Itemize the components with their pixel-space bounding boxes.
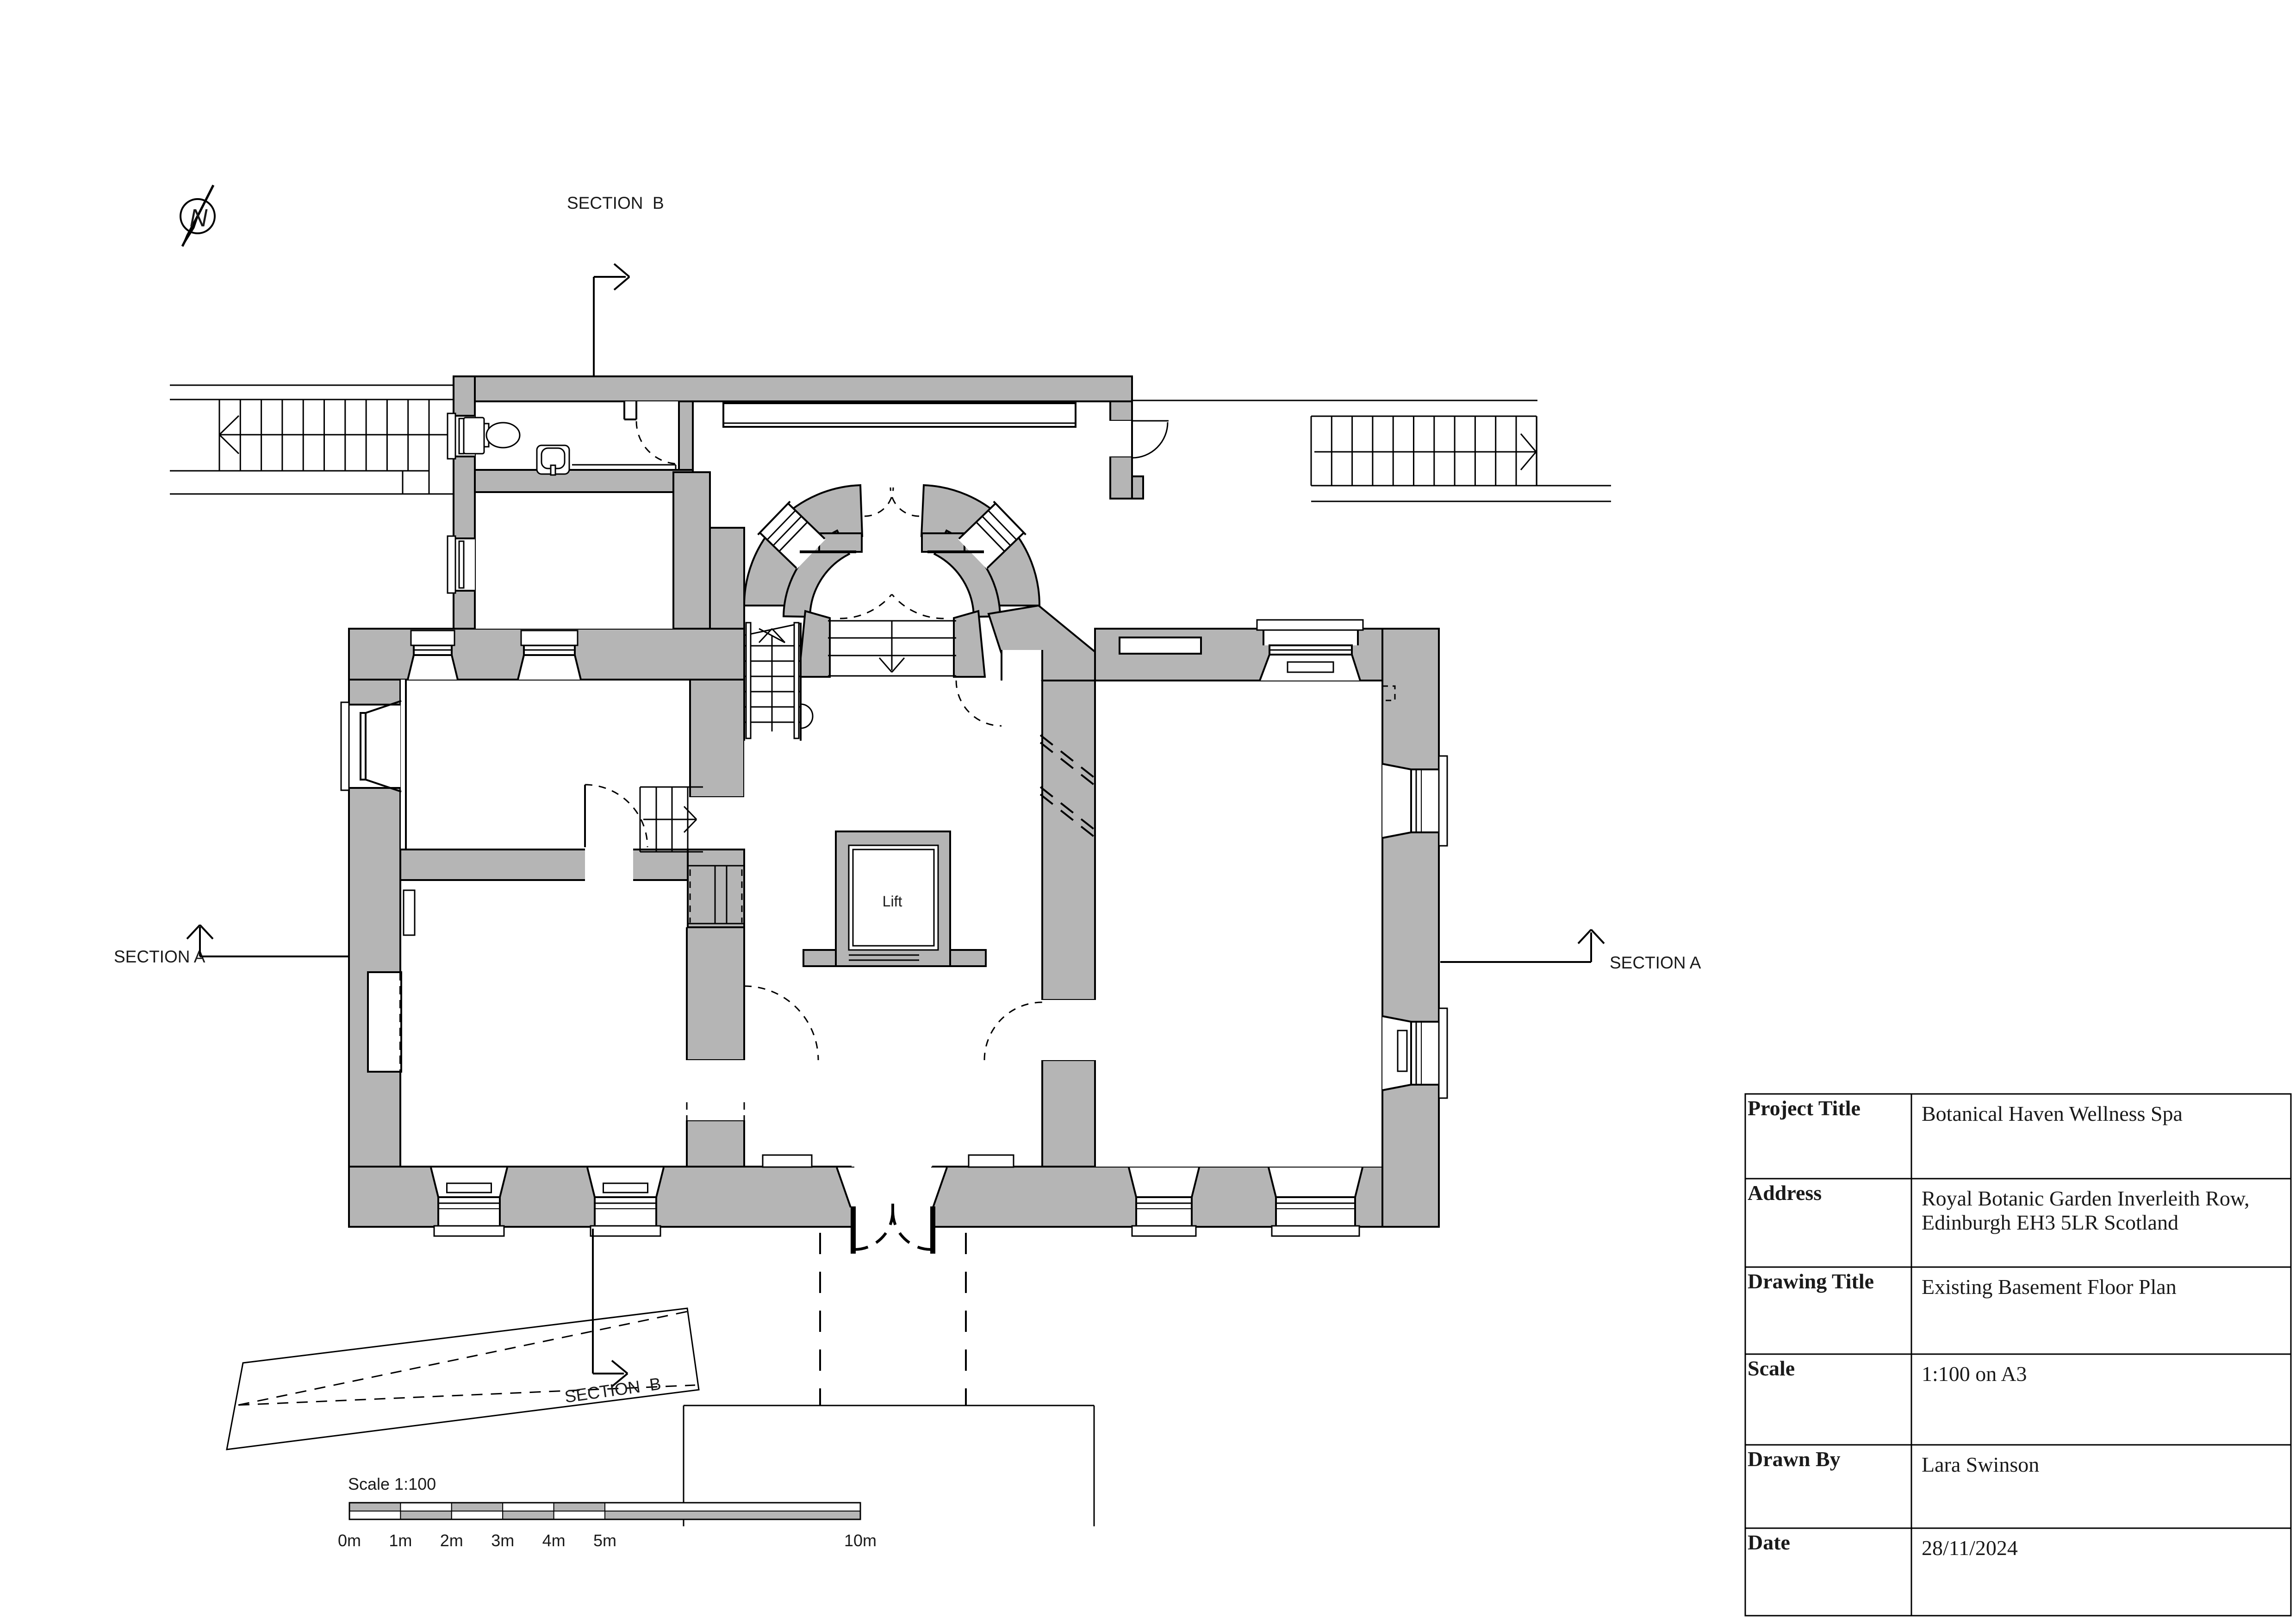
svg-text:0m: 0m: [338, 1531, 361, 1550]
svg-text:Edinburgh EH3 5LR Scotland: Edinburgh EH3 5LR Scotland: [1922, 1211, 2178, 1234]
svg-text:2m: 2m: [440, 1531, 463, 1550]
svg-text:Project Title: Project Title: [1748, 1096, 1860, 1120]
svg-text:3m: 3m: [491, 1531, 514, 1550]
svg-text:N: N: [190, 204, 208, 232]
svg-text:28/11/2024: 28/11/2024: [1922, 1536, 2018, 1560]
svg-text:Scale 1:100: Scale 1:100: [348, 1474, 436, 1493]
svg-text:Drawn By: Drawn By: [1748, 1447, 1841, 1471]
svg-text:Address: Address: [1748, 1181, 1822, 1205]
svg-text:Scale: Scale: [1748, 1356, 1795, 1380]
svg-text:Drawing Title: Drawing Title: [1748, 1269, 1874, 1293]
svg-text:1:100 on A3: 1:100 on A3: [1922, 1362, 2027, 1386]
svg-text:SECTION A: SECTION A: [114, 947, 205, 966]
svg-text:Lift: Lift: [883, 893, 902, 910]
svg-text:Royal Botanic Garden Inverleit: Royal Botanic Garden Inverleith Row,: [1922, 1187, 2250, 1210]
svg-text:1m: 1m: [389, 1531, 412, 1550]
svg-text:Lara Swinson: Lara Swinson: [1922, 1453, 2039, 1476]
svg-text:Botanical Haven Wellness Spa: Botanical Haven Wellness Spa: [1922, 1102, 2183, 1125]
svg-text:5m: 5m: [593, 1531, 616, 1550]
svg-text:Existing Basement Floor Plan: Existing Basement Floor Plan: [1922, 1275, 2177, 1299]
svg-text:SECTION A: SECTION A: [1610, 953, 1701, 972]
svg-text:Date: Date: [1748, 1530, 1790, 1554]
svg-text:10m: 10m: [844, 1531, 877, 1550]
svg-text:SECTION B: SECTION B: [567, 194, 664, 212]
svg-text:4m: 4m: [542, 1531, 566, 1550]
